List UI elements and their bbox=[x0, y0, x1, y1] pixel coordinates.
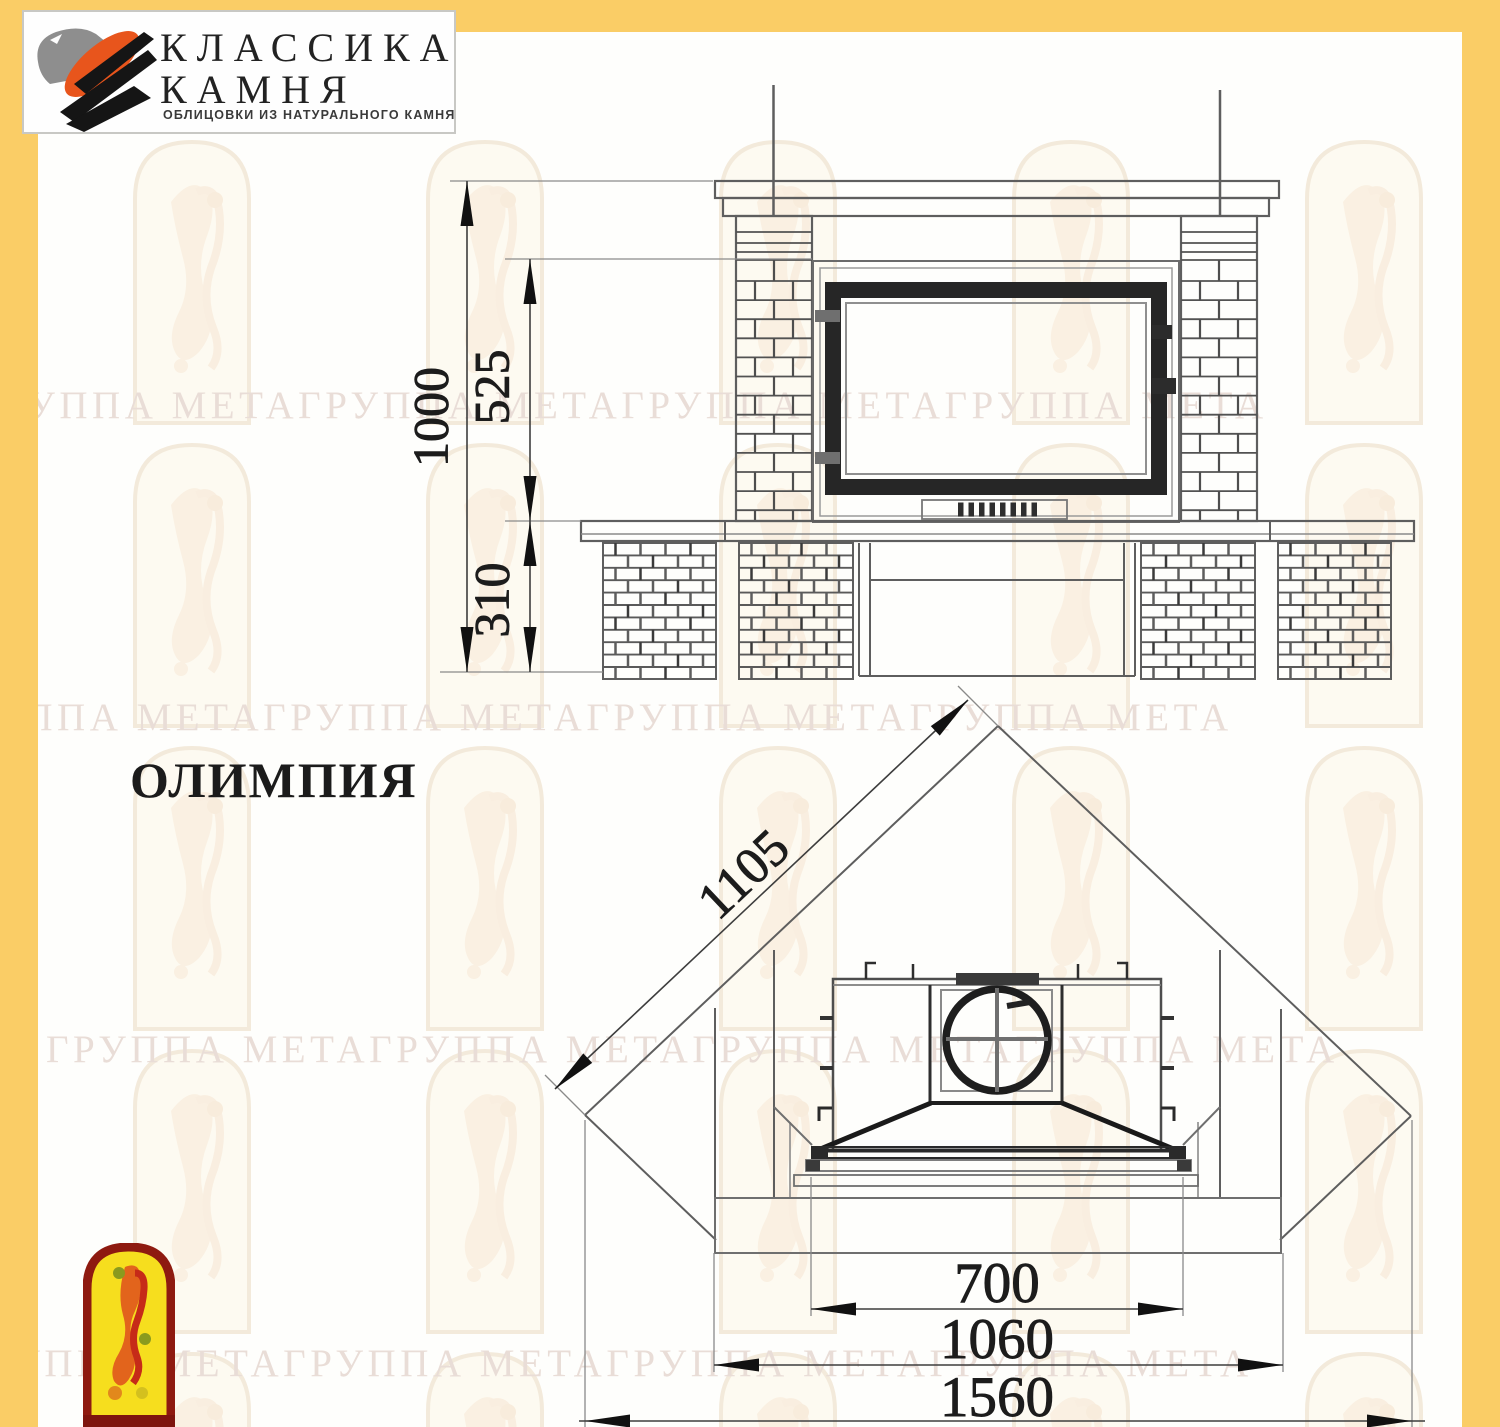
svg-text:525: 525 bbox=[463, 350, 519, 425]
svg-text:ОЛИМПИЯ: ОЛИМПИЯ bbox=[130, 752, 418, 808]
svg-text:310: 310 bbox=[463, 563, 519, 638]
svg-text:1105: 1105 bbox=[687, 819, 800, 930]
svg-text:1000: 1000 bbox=[402, 367, 458, 467]
svg-text:700: 700 bbox=[954, 1252, 1040, 1315]
svg-text:1060: 1060 bbox=[940, 1308, 1054, 1371]
svg-text:1560: 1560 bbox=[940, 1366, 1054, 1427]
